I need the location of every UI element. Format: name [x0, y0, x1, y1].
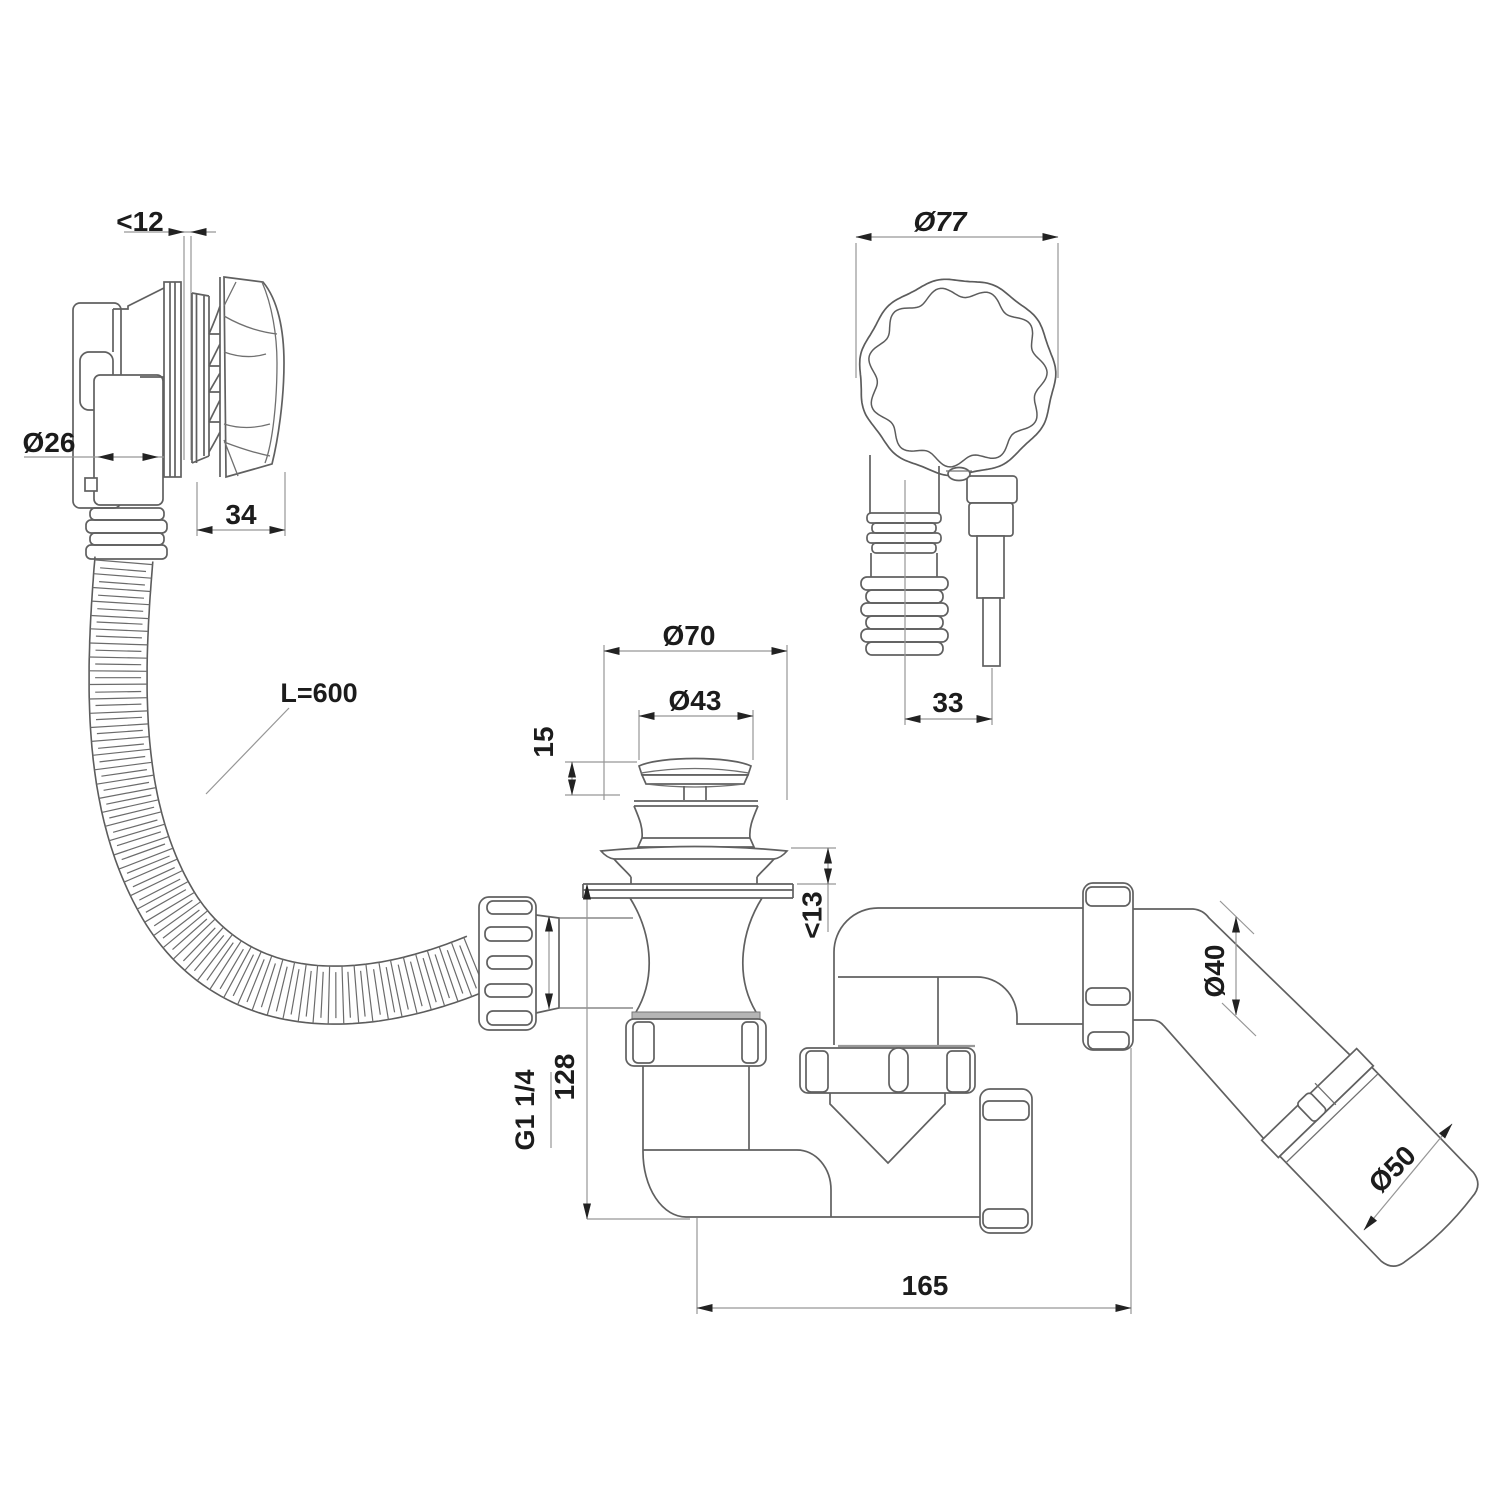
svg-text:Ø70: Ø70 — [663, 620, 716, 651]
svg-text:Ø40: Ø40 — [1199, 945, 1230, 998]
svg-text:G1 1/4: G1 1/4 — [510, 1069, 540, 1150]
svg-text:Ø43: Ø43 — [669, 685, 722, 716]
svg-text:15: 15 — [528, 726, 559, 757]
svg-text:L=600: L=600 — [280, 678, 357, 708]
svg-text:165: 165 — [902, 1270, 949, 1301]
svg-text:Ø77: Ø77 — [914, 206, 968, 237]
svg-text:Ø26: Ø26 — [23, 427, 76, 458]
svg-text:<12: <12 — [116, 206, 164, 237]
svg-text:33: 33 — [932, 687, 963, 718]
svg-text:128: 128 — [549, 1054, 580, 1101]
svg-text:<13: <13 — [796, 891, 827, 939]
svg-text:34: 34 — [225, 499, 257, 530]
